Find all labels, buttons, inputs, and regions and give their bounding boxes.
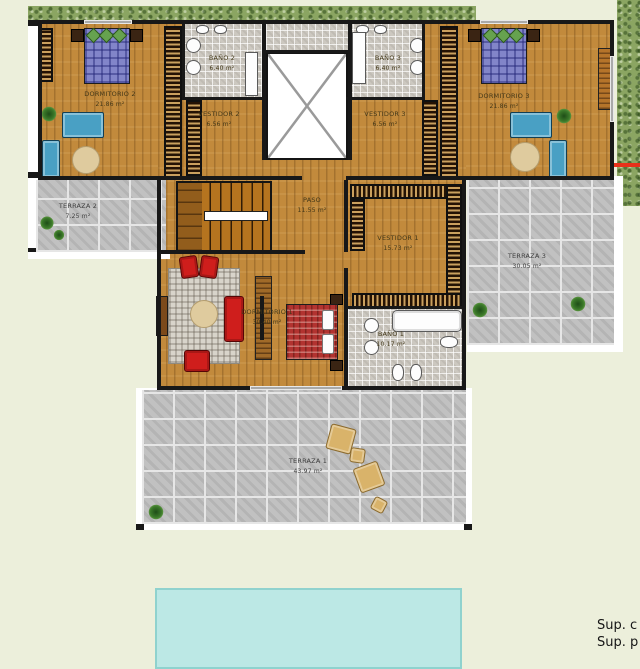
armchair [549,140,567,178]
room-label-bano-3: BAÑO 3 6.40 m² [352,54,424,73]
post [28,172,38,178]
room-area: 10.17 m² [360,340,422,349]
toilet [440,336,458,348]
room-area: 6.40 m² [186,64,258,73]
wall [346,97,424,100]
area-note-line: Sup. c [597,618,638,635]
pillow [322,334,334,354]
room-area: 30.05 m² [484,262,570,271]
wardrobe [350,199,365,251]
wall [157,176,161,390]
armchair [184,350,210,372]
room-label-dormitorio-2: DORMITORIO 2 21.86 m² [60,90,160,109]
bidet [374,25,387,34]
room-label-bano-1: BAÑO 1 10.17 m² [360,330,422,349]
room-area: 6.56 m² [184,120,254,129]
room-name: VESTIDOR 2 [184,110,254,120]
room-label-terraza-2: TERRAZA 2 7.25 m² [38,202,118,221]
post [28,20,38,26]
wardrobe [164,26,182,178]
armchair [179,255,200,279]
toilet [392,364,404,381]
elevator-shaft [266,52,348,160]
room-label-vestidor-2: VESTIDOR 2 6.56 m² [184,110,254,129]
swimming-pool [155,588,462,669]
plant [470,300,490,320]
room-label-dormitorio-3: DORMITORIO 3 21.86 m² [452,92,556,111]
sofa [510,112,552,138]
room-name: DORMITORIO 1 [232,308,302,318]
patio-table [349,447,366,464]
area-note: Sup. c Sup. p [597,618,638,652]
room-label-vestidor-3: VESTIDOR 3 6.56 m² [350,110,420,129]
room-name: TERRAZA 1 [266,457,350,467]
wall [184,97,262,100]
terrace-3-border [467,345,623,352]
room-label-terraza-3: TERRAZA 3 30.05 m² [484,252,570,271]
sink [186,38,201,53]
room-name: PASO [286,196,338,206]
nightstand [330,360,343,371]
wall [157,250,305,254]
window [480,20,528,24]
bathtub [392,310,462,332]
wall [38,20,42,180]
stair-landing [178,183,202,251]
room-name: DORMITORIO 2 [60,90,160,100]
wall [262,22,266,160]
room-area: 11.55 m² [286,206,338,215]
room-name: BAÑO 1 [360,330,422,340]
window [610,56,614,122]
window [84,20,132,24]
room-area: 15.73 m² [366,244,430,253]
stair-handrail [204,211,268,221]
toilet [196,25,209,34]
room-name: TERRAZA 2 [38,202,118,212]
wall [38,176,302,180]
room-area: 7.25 m² [38,212,118,221]
wall [348,306,464,309]
plant [39,104,59,124]
room-name: BAÑO 3 [352,54,424,64]
bidet [214,25,227,34]
room-label-paso: PASO 11.55 m² [286,196,338,215]
sliding-glass-door [250,386,342,390]
wardrobe [446,184,462,308]
plant [146,502,166,522]
hedge-top [28,6,476,21]
room-area: 30.40 m² [232,318,302,327]
room-label-dormitorio-1: DORMITORIO 1 30.40 m² [232,308,302,327]
round-rug [510,142,540,172]
room-area: 43.97 m² [266,467,350,476]
room-label-bano-2: BAÑO 2 6.40 m² [186,54,258,73]
nightstand [527,29,540,42]
wall [266,50,348,53]
terrace-3-border [614,176,623,352]
room-area: 6.56 m² [350,120,420,129]
room-label-terraza-1: TERRAZA 1 43.97 m² [266,457,350,476]
plant [52,228,66,242]
room-name: DORMITORIO 3 [452,92,556,102]
nightstand [130,29,143,42]
post [136,524,144,530]
area-note-line: Sup. p [597,635,638,652]
wall [344,268,348,390]
room-name: BAÑO 2 [186,54,258,64]
sofa [62,112,104,138]
bidet [410,364,422,381]
post [464,524,472,530]
room-label-vestidor-1: VESTIDOR 1 15.73 m² [366,234,430,253]
terrace-2-border [28,252,170,259]
pillow [322,310,334,330]
room-area: 21.86 m² [452,102,556,111]
wardrobe [422,100,438,176]
lobby-tile [266,22,348,52]
wall [182,22,185,100]
wall [344,180,348,252]
armchair [42,140,60,178]
floor-plan: DORMITORIO 2 21.86 m² BAÑO 2 6.40 m² VES… [0,0,640,669]
elevator-cross-icon [268,54,346,158]
nightstand [468,29,481,42]
wall [346,176,614,180]
room-name: VESTIDOR 1 [366,234,430,244]
nightstand [71,29,84,42]
room-area: 21.86 m² [60,100,160,109]
room-area: 6.40 m² [352,64,424,73]
round-table [190,300,218,328]
plant [554,106,574,126]
armchair [199,255,220,279]
plant [568,294,588,314]
room-name: VESTIDOR 3 [350,110,420,120]
round-rug [72,146,100,174]
wall [462,176,466,390]
room-name: TERRAZA 3 [484,252,570,262]
wall [348,22,352,160]
